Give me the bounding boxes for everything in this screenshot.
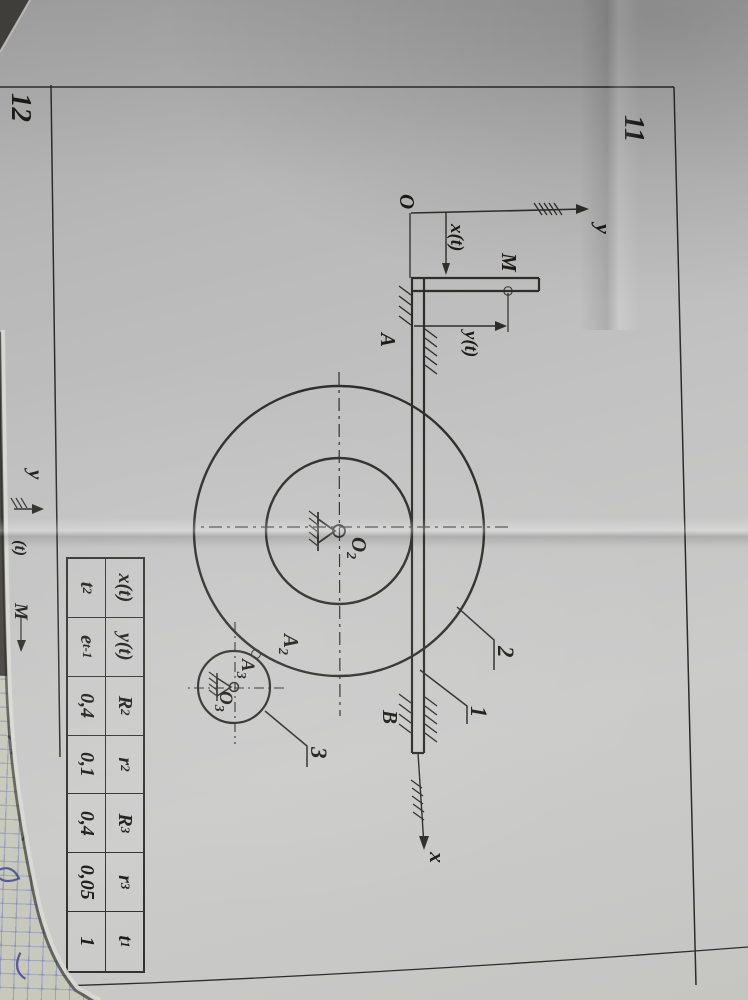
- point-m-label: M: [497, 252, 521, 273]
- gear2-pin-support: [309, 511, 335, 551]
- gear2-center-label: O2: [343, 537, 371, 559]
- table-header-r3: r3: [106, 853, 144, 912]
- x-axis-arrowhead: [419, 836, 429, 850]
- parameter-table: x(t) y(t) R2 r2 R3 r3 t1 t2 et-1 0,4 0,1…: [66, 557, 145, 973]
- photo-of-textbook-page: 11 12 y O x: [0, 0, 748, 1000]
- worksheet-paper: 11 12 y O x: [0, 0, 748, 1000]
- figure12-t-fragment: (t): [11, 540, 30, 556]
- table-header-R2: R2: [106, 677, 144, 736]
- figure12-m-fragment: M: [10, 602, 31, 621]
- figure12-fragment: [11, 498, 44, 652]
- x-axis-tail: [418, 753, 424, 846]
- x-axis-label: x: [425, 851, 450, 863]
- table-value-R2: 0,4: [68, 677, 106, 736]
- table-value-r3: 0,05: [68, 853, 106, 912]
- part1-label: 1: [466, 706, 491, 718]
- figure12-y-axis-label: y: [24, 467, 48, 480]
- guide-a-label: A: [376, 331, 400, 347]
- y-axis-label: y: [591, 221, 616, 234]
- x-of-t-label: x(t): [446, 223, 467, 251]
- table-value-yt: et-1: [68, 618, 106, 677]
- table-value-r2: 0,1: [68, 736, 106, 795]
- part-leader-lines: [265, 607, 494, 767]
- y-of-t-arrowhead: [495, 321, 507, 331]
- table-header-yt: y(t): [106, 618, 144, 677]
- gear3-center-label: O3: [211, 691, 236, 712]
- table-value-xt: t2: [68, 559, 106, 618]
- table-value-R3: 0,4: [68, 794, 106, 853]
- contact-a2-label: A2: [275, 632, 303, 655]
- guide-a-hatching: [399, 286, 437, 374]
- part2-label: 2: [493, 645, 518, 658]
- y-axis-hatching: [534, 203, 562, 215]
- table-header-r2: r2: [106, 736, 144, 795]
- table-header-R3: R3: [106, 794, 144, 853]
- x-of-t-arrowhead: [442, 263, 450, 275]
- guide-b-hatching: [399, 694, 437, 742]
- next-figure-number: 12: [5, 93, 37, 122]
- table-header-t1: t1: [106, 912, 144, 971]
- gear3-circle: [198, 651, 270, 723]
- table-header-xt: x(t): [106, 559, 144, 618]
- origin-label: O: [395, 194, 419, 209]
- contact-a3-label: A3: [233, 658, 258, 679]
- table-value-t1: 1: [68, 912, 106, 971]
- part3-label: 3: [306, 746, 331, 759]
- y-axis-arrowhead: [576, 204, 589, 214]
- figure-number: 11: [618, 115, 650, 142]
- upright-page-content: 11 12 y O x: [0, 0, 748, 1000]
- y-of-t-label: y(t): [460, 329, 481, 357]
- guide-b-label: B: [378, 709, 402, 724]
